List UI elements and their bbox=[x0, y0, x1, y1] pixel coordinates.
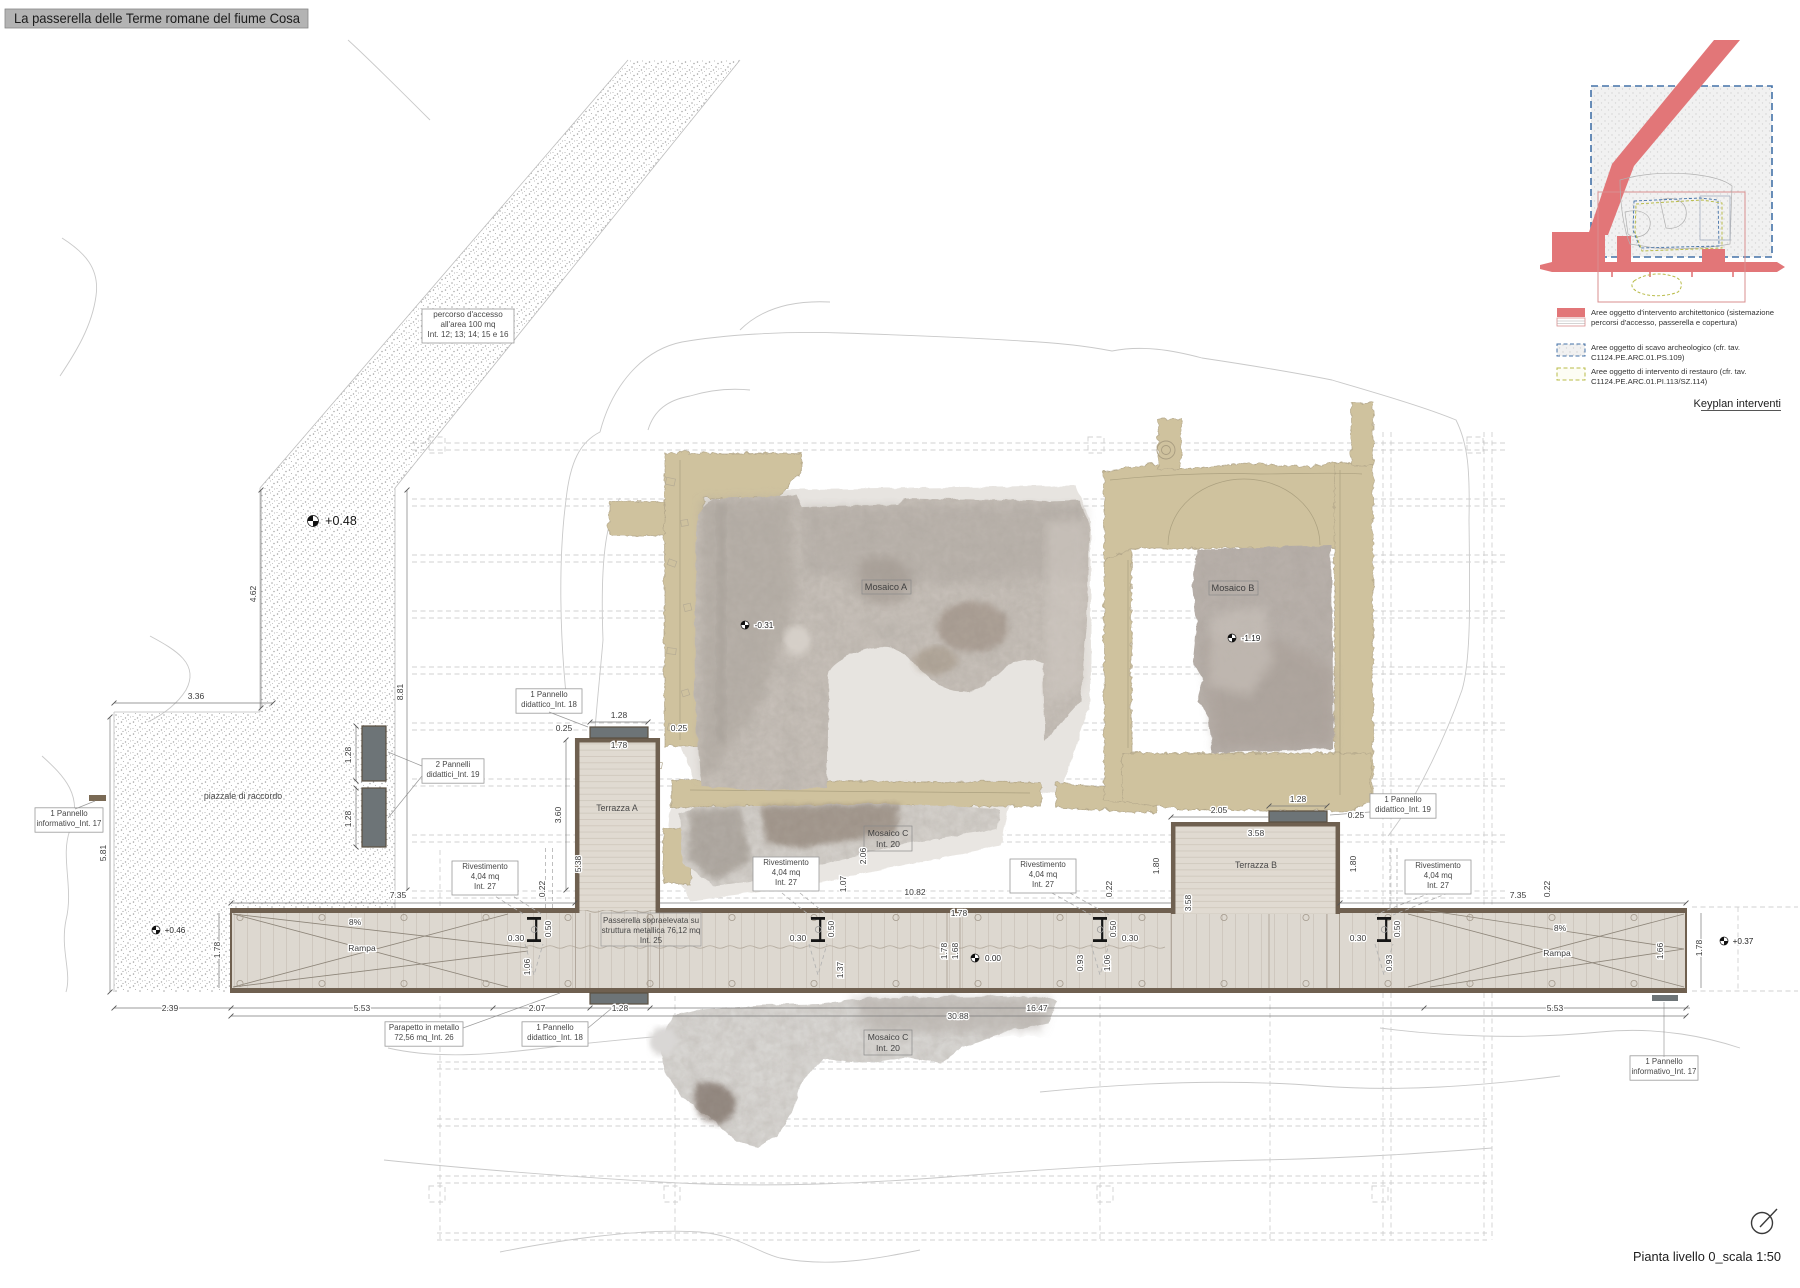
svg-text:Parapetto in metallo: Parapetto in metallo bbox=[389, 1023, 460, 1032]
svg-text:informativo_Int. 17: informativo_Int. 17 bbox=[1632, 1067, 1697, 1076]
svg-text:1 Pannello: 1 Pannello bbox=[50, 809, 88, 818]
svg-text:0.30: 0.30 bbox=[1350, 933, 1367, 943]
svg-text:1 Pannello: 1 Pannello bbox=[536, 1023, 574, 1032]
svg-text:1.78: 1.78 bbox=[611, 740, 628, 750]
svg-text:1.06: 1.06 bbox=[1102, 954, 1112, 971]
svg-text:Int. 27: Int. 27 bbox=[775, 878, 797, 887]
svg-text:3.36: 3.36 bbox=[188, 691, 205, 701]
svg-text:0.50: 0.50 bbox=[1392, 920, 1402, 937]
svg-text:1.78: 1.78 bbox=[1694, 939, 1704, 956]
svg-text:1.78: 1.78 bbox=[939, 942, 949, 959]
svg-text:1.28: 1.28 bbox=[1290, 794, 1307, 804]
svg-text:-0.31: -0.31 bbox=[755, 621, 774, 630]
svg-text:Pianta livello 0_scala 1:50: Pianta livello 0_scala 1:50 bbox=[1633, 1249, 1781, 1264]
svg-text:0.22: 0.22 bbox=[537, 880, 547, 897]
svg-text:7.35: 7.35 bbox=[390, 890, 407, 900]
svg-text:0.50: 0.50 bbox=[826, 920, 836, 937]
svg-text:7.35: 7.35 bbox=[1510, 890, 1527, 900]
svg-text:2.39: 2.39 bbox=[162, 1003, 179, 1013]
svg-text:1.78: 1.78 bbox=[951, 908, 968, 918]
svg-text:Int. 27: Int. 27 bbox=[474, 882, 496, 891]
svg-text:0.25: 0.25 bbox=[556, 723, 573, 733]
svg-text:Rampa: Rampa bbox=[348, 943, 376, 953]
svg-text:Rivestimento: Rivestimento bbox=[1415, 861, 1461, 870]
svg-text:Int. 27: Int. 27 bbox=[1427, 881, 1449, 890]
svg-text:Terrazza A: Terrazza A bbox=[596, 803, 638, 813]
svg-text:0.30: 0.30 bbox=[790, 933, 807, 943]
svg-text:0.93: 0.93 bbox=[1384, 954, 1394, 971]
svg-text:1.78: 1.78 bbox=[212, 941, 222, 958]
svg-text:0.50: 0.50 bbox=[1108, 920, 1118, 937]
svg-text:2.07: 2.07 bbox=[529, 1003, 546, 1013]
svg-text:5.38: 5.38 bbox=[573, 855, 583, 872]
svg-text:Keyplan interventi: Keyplan interventi bbox=[1694, 398, 1781, 410]
svg-text:2.06: 2.06 bbox=[858, 847, 868, 864]
svg-text:La passerella delle Terme roma: La passerella delle Terme romane del fiu… bbox=[14, 10, 300, 26]
svg-text:Terrazza B: Terrazza B bbox=[1235, 860, 1277, 870]
svg-text:Int. 20: Int. 20 bbox=[876, 1043, 900, 1053]
svg-text:Aree oggetto di scavo archeolo: Aree oggetto di scavo archeologico (cfr.… bbox=[1591, 343, 1740, 352]
svg-text:struttura metallica 76,12 mq: struttura metallica 76,12 mq bbox=[602, 926, 701, 935]
svg-text:+0.37: +0.37 bbox=[1733, 937, 1754, 946]
svg-text:3.60: 3.60 bbox=[553, 806, 563, 823]
svg-text:Rivestimento: Rivestimento bbox=[763, 858, 809, 867]
svg-text:0.50: 0.50 bbox=[543, 920, 553, 937]
svg-text:1.37: 1.37 bbox=[835, 961, 845, 978]
svg-text:16.47: 16.47 bbox=[1026, 1003, 1048, 1013]
svg-text:2.05: 2.05 bbox=[1211, 805, 1228, 815]
svg-text:4,04 mq: 4,04 mq bbox=[1029, 870, 1058, 879]
svg-text:10.82: 10.82 bbox=[904, 887, 926, 897]
svg-text:5.53: 5.53 bbox=[1547, 1003, 1564, 1013]
svg-text:1.66: 1.66 bbox=[1655, 942, 1665, 959]
svg-text:1 Pannello: 1 Pannello bbox=[1384, 795, 1422, 804]
svg-text:1.80: 1.80 bbox=[1151, 857, 1161, 874]
svg-text:-1.19: -1.19 bbox=[1242, 634, 1261, 643]
svg-text:3.58: 3.58 bbox=[1248, 828, 1265, 838]
svg-text:Aree oggetto di intervento di: Aree oggetto di intervento di restauro (… bbox=[1591, 367, 1746, 376]
svg-text:1.28: 1.28 bbox=[611, 710, 628, 720]
svg-text:1.68: 1.68 bbox=[950, 942, 960, 959]
svg-text:0.30: 0.30 bbox=[1122, 933, 1139, 943]
svg-text:Rampa: Rampa bbox=[1543, 948, 1571, 958]
svg-text:8%: 8% bbox=[1554, 923, 1567, 933]
svg-text:Rivestimento: Rivestimento bbox=[1020, 860, 1066, 869]
svg-text:5.53: 5.53 bbox=[354, 1003, 371, 1013]
svg-text:percorso d'accesso: percorso d'accesso bbox=[433, 310, 503, 319]
svg-text:1.80: 1.80 bbox=[1348, 855, 1358, 872]
svg-text:4,04 mq: 4,04 mq bbox=[471, 872, 500, 881]
svg-text:3.58: 3.58 bbox=[1183, 894, 1193, 911]
svg-text:Int. 12; 13; 14; 15 e 16: Int. 12; 13; 14; 15 e 16 bbox=[427, 330, 508, 339]
svg-text:0.25: 0.25 bbox=[1348, 810, 1365, 820]
svg-text:all'area 100 mq: all'area 100 mq bbox=[440, 320, 495, 329]
svg-text:Rivestimento: Rivestimento bbox=[462, 862, 508, 871]
svg-text:5.81: 5.81 bbox=[98, 844, 108, 861]
svg-text:didattico_Int. 18: didattico_Int. 18 bbox=[527, 1033, 583, 1042]
svg-text:1.28: 1.28 bbox=[343, 810, 353, 827]
svg-text:didattico_Int. 19: didattico_Int. 19 bbox=[1375, 805, 1431, 814]
svg-text:Int. 20: Int. 20 bbox=[876, 839, 900, 849]
svg-text:4.62: 4.62 bbox=[248, 585, 258, 602]
svg-text:Int. 25: Int. 25 bbox=[640, 936, 663, 945]
svg-text:Mosaico B: Mosaico B bbox=[1212, 583, 1255, 593]
svg-text:percorsi d'accesso, passerella: percorsi d'accesso, passerella e copertu… bbox=[1591, 318, 1738, 327]
svg-text:1.07: 1.07 bbox=[838, 875, 848, 892]
svg-text:C1124.PE.ARC.01.PI.113/SZ.114): C1124.PE.ARC.01.PI.113/SZ.114) bbox=[1591, 377, 1708, 386]
svg-text:Mosaico C: Mosaico C bbox=[868, 828, 909, 838]
svg-text:informativo_Int. 17: informativo_Int. 17 bbox=[37, 819, 102, 828]
svg-text:30.88: 30.88 bbox=[947, 1011, 969, 1021]
svg-text:4,04 mq: 4,04 mq bbox=[772, 868, 801, 877]
svg-text:Mosaico A: Mosaico A bbox=[865, 582, 908, 592]
svg-text:0.22: 0.22 bbox=[1104, 880, 1114, 897]
svg-text:Mosaico C: Mosaico C bbox=[868, 1032, 909, 1042]
svg-text:0.22: 0.22 bbox=[1542, 880, 1552, 897]
svg-text:8%: 8% bbox=[349, 917, 362, 927]
svg-text:0.25: 0.25 bbox=[671, 723, 688, 733]
svg-text:72,56 mq_Int. 26: 72,56 mq_Int. 26 bbox=[394, 1033, 454, 1042]
svg-text:1.06: 1.06 bbox=[522, 958, 532, 975]
svg-text:8.81: 8.81 bbox=[395, 683, 405, 700]
svg-text:1.28: 1.28 bbox=[612, 1003, 629, 1013]
svg-text:4,04 mq: 4,04 mq bbox=[1424, 871, 1453, 880]
svg-text:+0.46: +0.46 bbox=[165, 926, 186, 935]
svg-text:1 Pannello: 1 Pannello bbox=[1645, 1057, 1683, 1066]
svg-text:C1124.PE.ARC.01.PS.109): C1124.PE.ARC.01.PS.109) bbox=[1591, 353, 1685, 362]
svg-text:Passerella sopraelevata su: Passerella sopraelevata su bbox=[603, 916, 699, 925]
svg-text:0.30: 0.30 bbox=[508, 933, 525, 943]
svg-text:didattici_Int. 19: didattici_Int. 19 bbox=[426, 770, 480, 779]
svg-text:1 Pannello: 1 Pannello bbox=[530, 690, 568, 699]
svg-text:Int. 27: Int. 27 bbox=[1032, 880, 1054, 889]
svg-text:0.00: 0.00 bbox=[985, 954, 1001, 963]
svg-text:0.93: 0.93 bbox=[1075, 954, 1085, 971]
svg-text:Aree oggetto d'intervento arch: Aree oggetto d'intervento architettonico… bbox=[1591, 308, 1774, 317]
svg-text:didattico_Int. 18: didattico_Int. 18 bbox=[521, 700, 577, 709]
svg-text:2 Pannelli: 2 Pannelli bbox=[436, 760, 471, 769]
svg-text:+0.48: +0.48 bbox=[325, 514, 357, 528]
svg-text:piazzale di raccordo: piazzale di raccordo bbox=[204, 791, 282, 801]
svg-text:1.28: 1.28 bbox=[343, 746, 353, 763]
